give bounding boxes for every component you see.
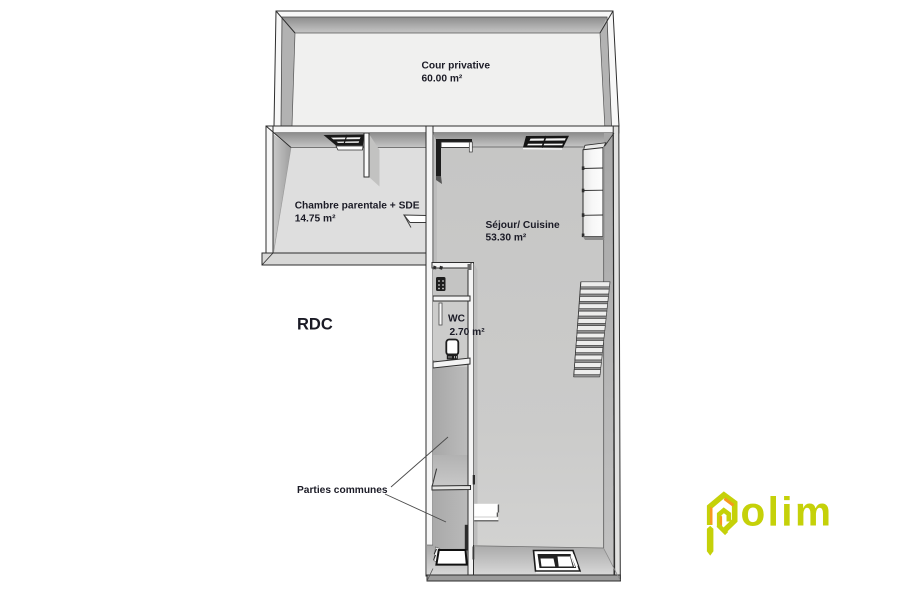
svg-text:Parties communes: Parties communes — [297, 485, 388, 496]
svg-text:Cour privative: Cour privative — [422, 61, 491, 72]
svg-text:Chambre parentale + SDE: Chambre parentale + SDE — [295, 201, 420, 212]
svg-text:RDC: RDC — [297, 316, 333, 334]
svg-text:60.00 m²: 60.00 m² — [422, 74, 463, 85]
svg-text:WC: WC — [448, 314, 466, 325]
svg-text:2.70 m²: 2.70 m² — [450, 327, 486, 338]
svg-text:olim: olim — [741, 489, 834, 535]
svg-text:14.75 m²: 14.75 m² — [295, 214, 336, 225]
svg-text:Séjour/ Cuisine: Séjour/ Cuisine — [486, 220, 560, 231]
svg-text:53.30 m²: 53.30 m² — [486, 233, 527, 244]
